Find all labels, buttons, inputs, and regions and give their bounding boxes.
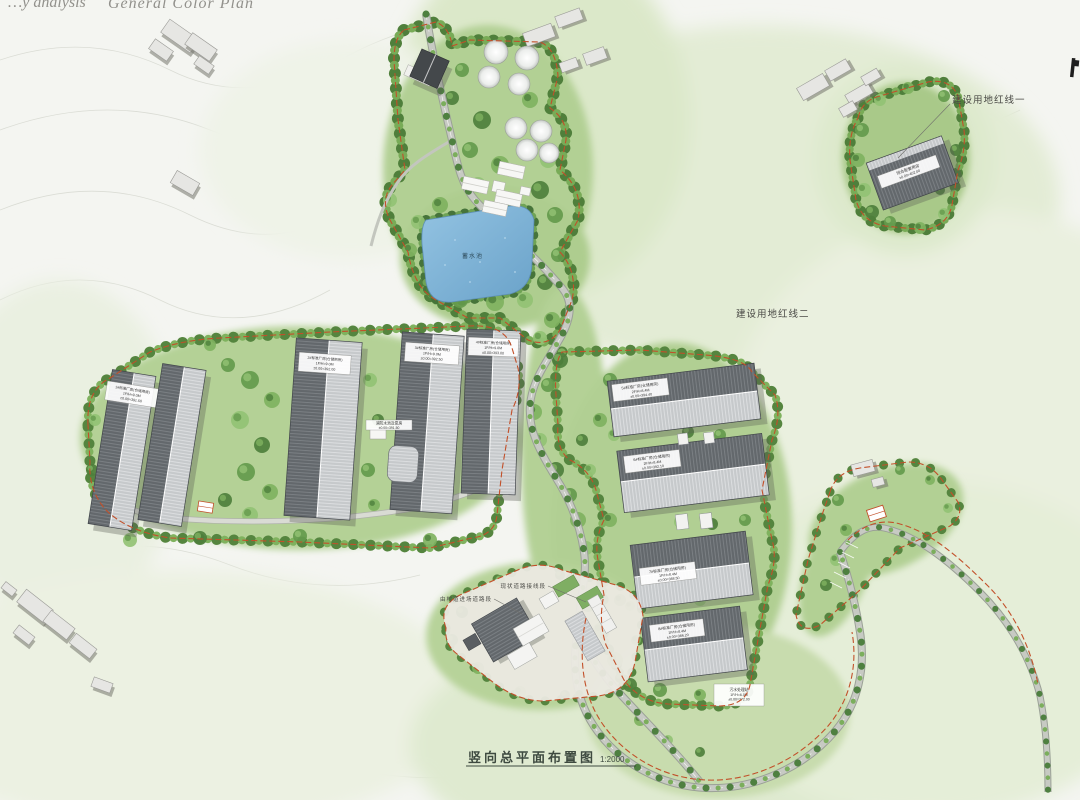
tree-highlight — [243, 373, 251, 381]
tree-highlight — [896, 466, 901, 471]
drawing-title: 竖向总平面布置图 — [468, 750, 596, 765]
tree-highlight — [206, 341, 211, 346]
tree-highlight — [546, 314, 553, 321]
tree-highlight — [533, 183, 541, 191]
tree-highlight — [853, 155, 859, 161]
tree-highlight — [857, 125, 863, 131]
tree-highlight — [543, 380, 549, 386]
tree-highlight — [405, 245, 411, 251]
tree-highlight — [904, 84, 909, 89]
site-plan-canvas: { "header": { "title_left_partial": "…y … — [0, 0, 1080, 800]
header-right-partial: General Color Plan — [108, 0, 254, 12]
tree-highlight — [91, 416, 96, 421]
warehouse-8: 7#标准厂房(仓储用房) 1F/H=8.4M ±0.00=388.50 — [630, 530, 760, 614]
svg-text:±0.00=393.00: ±0.00=393.00 — [482, 351, 504, 356]
tree-highlight — [944, 504, 949, 509]
tree-highlight — [696, 691, 701, 696]
road-note-2: 由村道进场道路段 — [440, 595, 492, 603]
tree-highlight — [834, 496, 839, 501]
warehouse-9: 8#标准厂房(仓储用房) 1F/H=8.4M ±0.00=386.20 — [640, 605, 754, 687]
pump-house-label: 消防水池及泵房 — [376, 421, 403, 426]
tree-highlight — [716, 431, 721, 436]
tree-highlight — [425, 535, 431, 541]
tree-highlight — [605, 515, 611, 521]
tree-highlight — [295, 531, 301, 537]
tree-highlight — [741, 516, 746, 521]
tree-highlight — [413, 217, 419, 223]
tree-highlight — [586, 466, 591, 471]
tree-highlight — [239, 465, 247, 473]
drawing-scale: 1:2000 — [600, 755, 625, 764]
tree-highlight — [447, 93, 453, 99]
tree-highlight — [266, 394, 273, 401]
tree-highlight — [220, 495, 226, 501]
tree-highlight — [535, 333, 541, 339]
warehouse-3: 2#标准厂房(仓储用房) 1F/H=9.0M ±0.00=392.00 — [284, 338, 369, 527]
tree-highlight — [595, 415, 601, 421]
tree-highlight — [223, 360, 229, 366]
tree-highlight — [264, 486, 271, 493]
tree-highlight — [464, 144, 471, 151]
red-line-1-label: 建设用地红线一 — [952, 94, 1026, 106]
tree-highlight — [363, 465, 369, 471]
tree-highlight — [822, 581, 827, 586]
pond-label: 蓄水池 — [462, 252, 483, 260]
tree-highlight — [842, 526, 847, 531]
tree-highlight — [940, 210, 945, 215]
tree-highlight — [475, 113, 483, 121]
tree-highlight — [434, 199, 441, 206]
tree-highlight — [553, 250, 559, 256]
tree-highlight — [605, 375, 611, 381]
tree-highlight — [256, 439, 263, 446]
tree-highlight — [370, 501, 375, 506]
tree-highlight — [926, 476, 931, 481]
tree-highlight — [524, 94, 531, 101]
tree-highlight — [539, 276, 546, 283]
tree-highlight — [233, 413, 241, 421]
svg-text:±0.00=391.50: ±0.00=391.50 — [379, 426, 400, 430]
road-note-1: 现状道路接线段 — [500, 582, 546, 590]
red-line-2-label: 建设用地红线二 — [736, 308, 810, 320]
tree-highlight — [859, 185, 865, 191]
existing-building — [169, 170, 203, 199]
sewage-label: 污水处理站 — [730, 687, 749, 692]
tree-highlight — [916, 224, 921, 229]
header-left-partial: …y analysis — [8, 0, 86, 11]
tree-highlight — [867, 207, 873, 213]
tree-highlight — [578, 436, 583, 441]
tree-highlight — [244, 509, 251, 516]
tree-highlight — [940, 92, 945, 97]
sewage-station: 污水处理站 1F/H=6.0M ±0.00=372.00 — [714, 684, 764, 706]
gatehouse-left — [197, 501, 213, 513]
edge-mark — [1070, 58, 1079, 77]
tree-highlight — [457, 65, 463, 71]
tree-highlight — [832, 556, 837, 561]
pond: 蓄水池 — [422, 206, 534, 302]
tree-highlight — [519, 294, 526, 301]
tree-highlight — [696, 748, 701, 753]
tree-highlight — [549, 209, 556, 216]
site-plan-svg: 蓄水池 1#标准厂房(仓储用房) 1F/H=9.0M ±0.00=391.50 — [0, 0, 1080, 800]
tree-highlight — [886, 218, 891, 223]
svg-text:1F/H=9.0M: 1F/H=9.0M — [484, 346, 502, 351]
tree-highlight — [195, 533, 201, 539]
warehouse-5: 4#标准厂房(仓储用房) 1F/H=9.0M ±0.00=393.00 — [461, 329, 527, 501]
